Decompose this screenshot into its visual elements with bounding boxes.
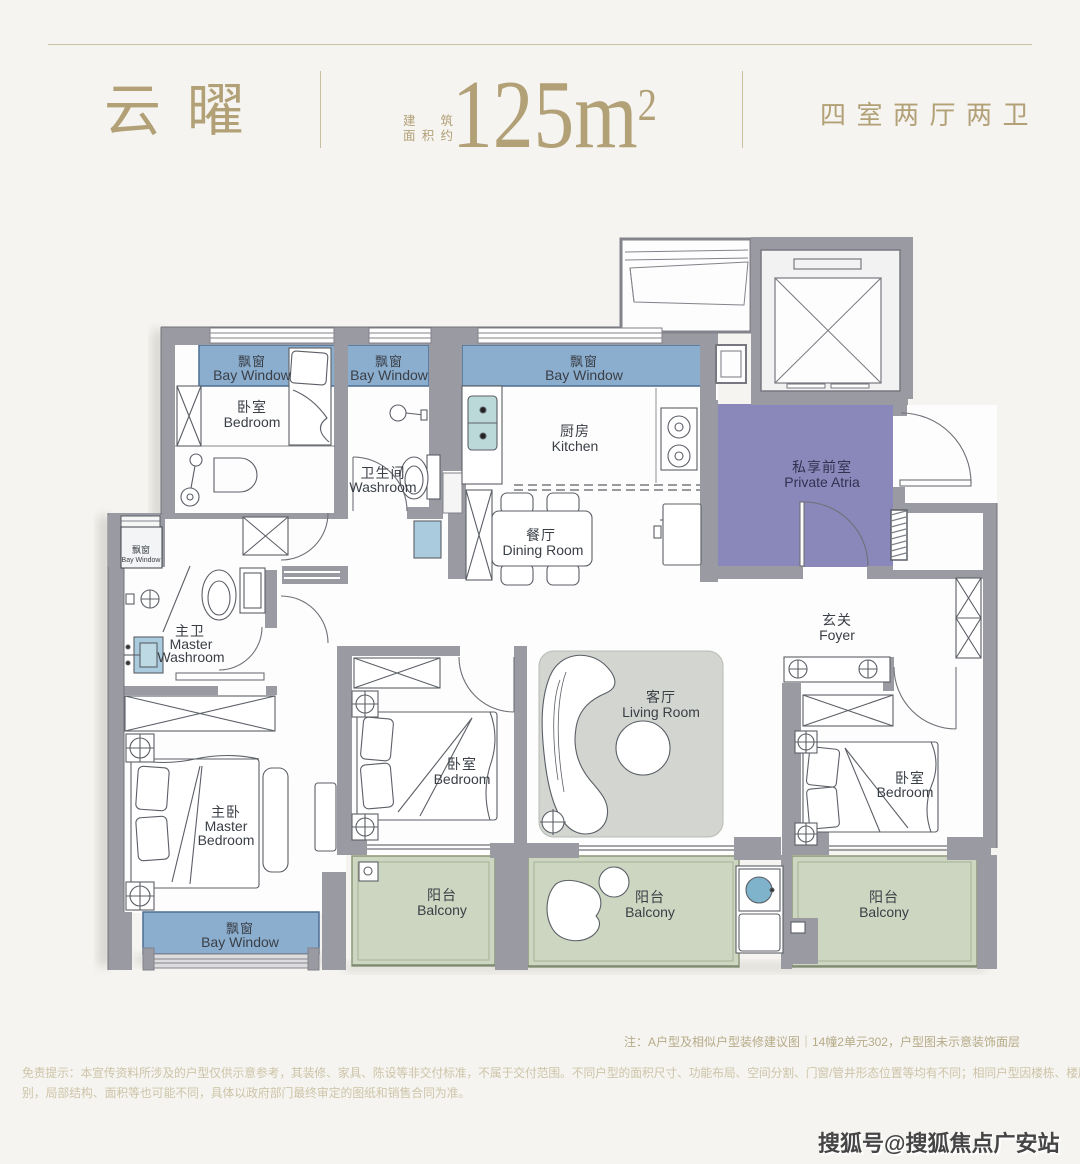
svg-text:Bay Window: Bay Window: [545, 367, 624, 383]
svg-text:Bay Window: Bay Window: [350, 367, 429, 383]
svg-text:Bay Window: Bay Window: [213, 367, 292, 383]
svg-text:卧室: 卧室: [447, 756, 477, 772]
svg-text:Kitchen: Kitchen: [552, 438, 599, 454]
svg-text:餐厅: 餐厅: [526, 527, 556, 543]
svg-text:Bedroom: Bedroom: [198, 832, 255, 848]
svg-text:飘窗: 飘窗: [132, 544, 150, 555]
svg-text:客厅: 客厅: [646, 689, 676, 705]
svg-text:Bedroom: Bedroom: [434, 771, 491, 787]
svg-text:私享前室: 私享前室: [792, 459, 852, 475]
svg-text:Dining Room: Dining Room: [503, 542, 584, 558]
svg-text:Living Room: Living Room: [622, 704, 700, 720]
svg-text:厨房: 厨房: [560, 423, 590, 439]
svg-text:卧室: 卧室: [237, 399, 267, 415]
svg-text:Bedroom: Bedroom: [224, 414, 281, 430]
svg-text:Washroom: Washroom: [349, 479, 416, 495]
svg-text:Bay Window: Bay Window: [122, 557, 162, 564]
svg-text:Foyer: Foyer: [819, 627, 855, 643]
svg-text:Balcony: Balcony: [417, 902, 467, 918]
svg-text:Bay Window: Bay Window: [201, 934, 280, 950]
svg-text:阳台: 阳台: [869, 889, 899, 905]
svg-text:Private Atria: Private Atria: [784, 474, 860, 490]
svg-text:Washroom: Washroom: [157, 649, 224, 665]
svg-text:Bedroom: Bedroom: [877, 784, 934, 800]
svg-text:Balcony: Balcony: [625, 904, 675, 920]
svg-text:Balcony: Balcony: [859, 904, 909, 920]
svg-text:阳台: 阳台: [635, 889, 665, 905]
svg-text:阳台: 阳台: [427, 887, 457, 903]
svg-text:玄关: 玄关: [822, 612, 852, 628]
